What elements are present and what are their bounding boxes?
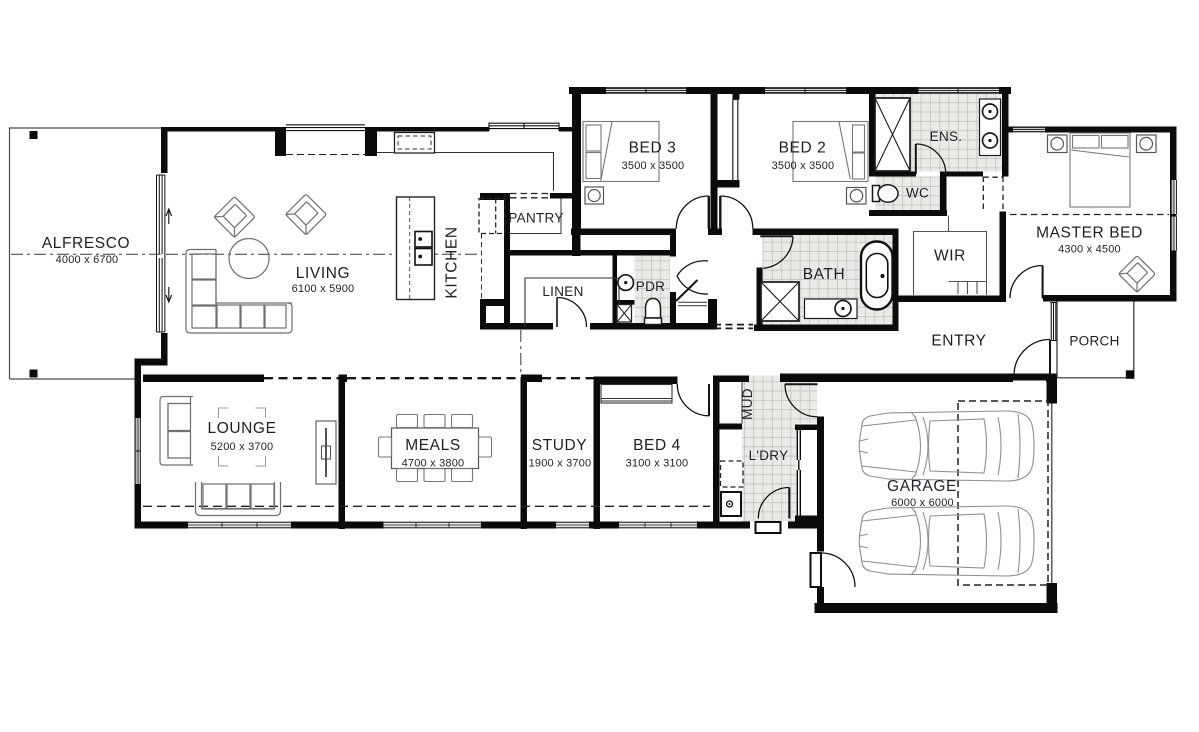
- svg-text:PORCH: PORCH: [1069, 334, 1119, 349]
- svg-text:WIR: WIR: [934, 248, 966, 265]
- svg-text:3500 x 3500: 3500 x 3500: [622, 160, 685, 172]
- svg-text:4700 x 3800: 4700 x 3800: [402, 458, 465, 470]
- svg-text:3500 x 3500: 3500 x 3500: [772, 160, 835, 172]
- svg-text:LINEN: LINEN: [542, 284, 583, 299]
- svg-text:PDR: PDR: [636, 279, 665, 294]
- svg-text:1900 x 3700: 1900 x 3700: [529, 458, 592, 470]
- svg-text:6100 x 5900: 6100 x 5900: [292, 283, 355, 295]
- svg-text:BATH: BATH: [803, 266, 846, 283]
- svg-text:MUD: MUD: [740, 388, 755, 420]
- svg-text:WC: WC: [906, 186, 929, 201]
- svg-text:PANTRY: PANTRY: [508, 211, 563, 226]
- svg-text:LIVING: LIVING: [296, 265, 350, 282]
- svg-text:5200 x 3700: 5200 x 3700: [211, 441, 274, 453]
- svg-text:ENS.: ENS.: [930, 129, 963, 144]
- svg-text:ALFRESCO: ALFRESCO: [42, 235, 130, 252]
- svg-text:6000 x 6000: 6000 x 6000: [891, 497, 954, 509]
- svg-text:4000 x 6700: 4000 x 6700: [56, 254, 119, 266]
- svg-text:BED 2: BED 2: [779, 140, 827, 157]
- svg-text:BED 3: BED 3: [629, 140, 677, 157]
- svg-text:MEALS: MEALS: [405, 437, 461, 454]
- svg-text:KITCHEN: KITCHEN: [444, 226, 461, 298]
- svg-text:BED 4: BED 4: [633, 437, 681, 454]
- svg-text:STUDY: STUDY: [532, 437, 588, 454]
- svg-text:LOUNGE: LOUNGE: [207, 420, 276, 437]
- svg-text:GARAGE: GARAGE: [887, 478, 957, 495]
- svg-text:L'DRY: L'DRY: [749, 448, 789, 463]
- svg-text:3100 x 3100: 3100 x 3100: [626, 458, 689, 470]
- svg-text:ENTRY: ENTRY: [931, 333, 986, 350]
- svg-text:4300 x 4500: 4300 x 4500: [1058, 244, 1121, 256]
- svg-text:MASTER BED: MASTER BED: [1036, 225, 1143, 242]
